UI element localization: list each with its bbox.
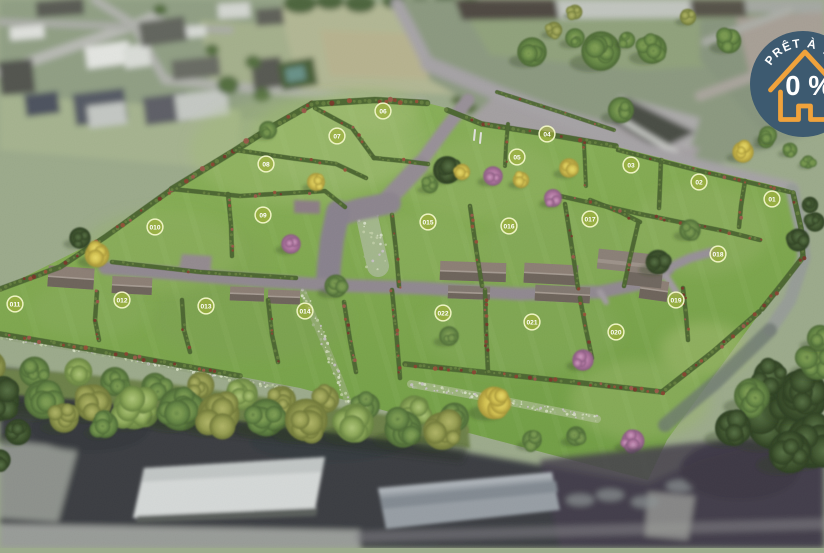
- svg-text:017: 017: [584, 216, 595, 223]
- svg-text:01: 01: [768, 196, 776, 203]
- svg-text:021: 021: [526, 319, 537, 326]
- svg-text:018: 018: [712, 251, 723, 258]
- svg-text:08: 08: [262, 161, 270, 168]
- svg-text:09: 09: [259, 212, 267, 219]
- svg-text:02: 02: [695, 179, 703, 186]
- svg-text:020: 020: [610, 329, 621, 336]
- svg-text:016: 016: [503, 223, 514, 230]
- svg-text:019: 019: [670, 297, 681, 304]
- svg-text:05: 05: [513, 154, 521, 161]
- svg-text:03: 03: [627, 162, 635, 169]
- svg-text:014: 014: [299, 308, 310, 315]
- svg-text:012: 012: [116, 297, 127, 304]
- svg-text:07: 07: [333, 133, 341, 140]
- svg-text:015: 015: [422, 219, 433, 226]
- svg-text:022: 022: [437, 310, 448, 317]
- svg-text:010: 010: [149, 224, 160, 231]
- svg-text:04: 04: [543, 131, 551, 138]
- svg-text:013: 013: [200, 303, 211, 310]
- svg-text:06: 06: [379, 108, 387, 115]
- svg-text:011: 011: [10, 301, 21, 308]
- svg-text:0 %: 0 %: [785, 70, 824, 101]
